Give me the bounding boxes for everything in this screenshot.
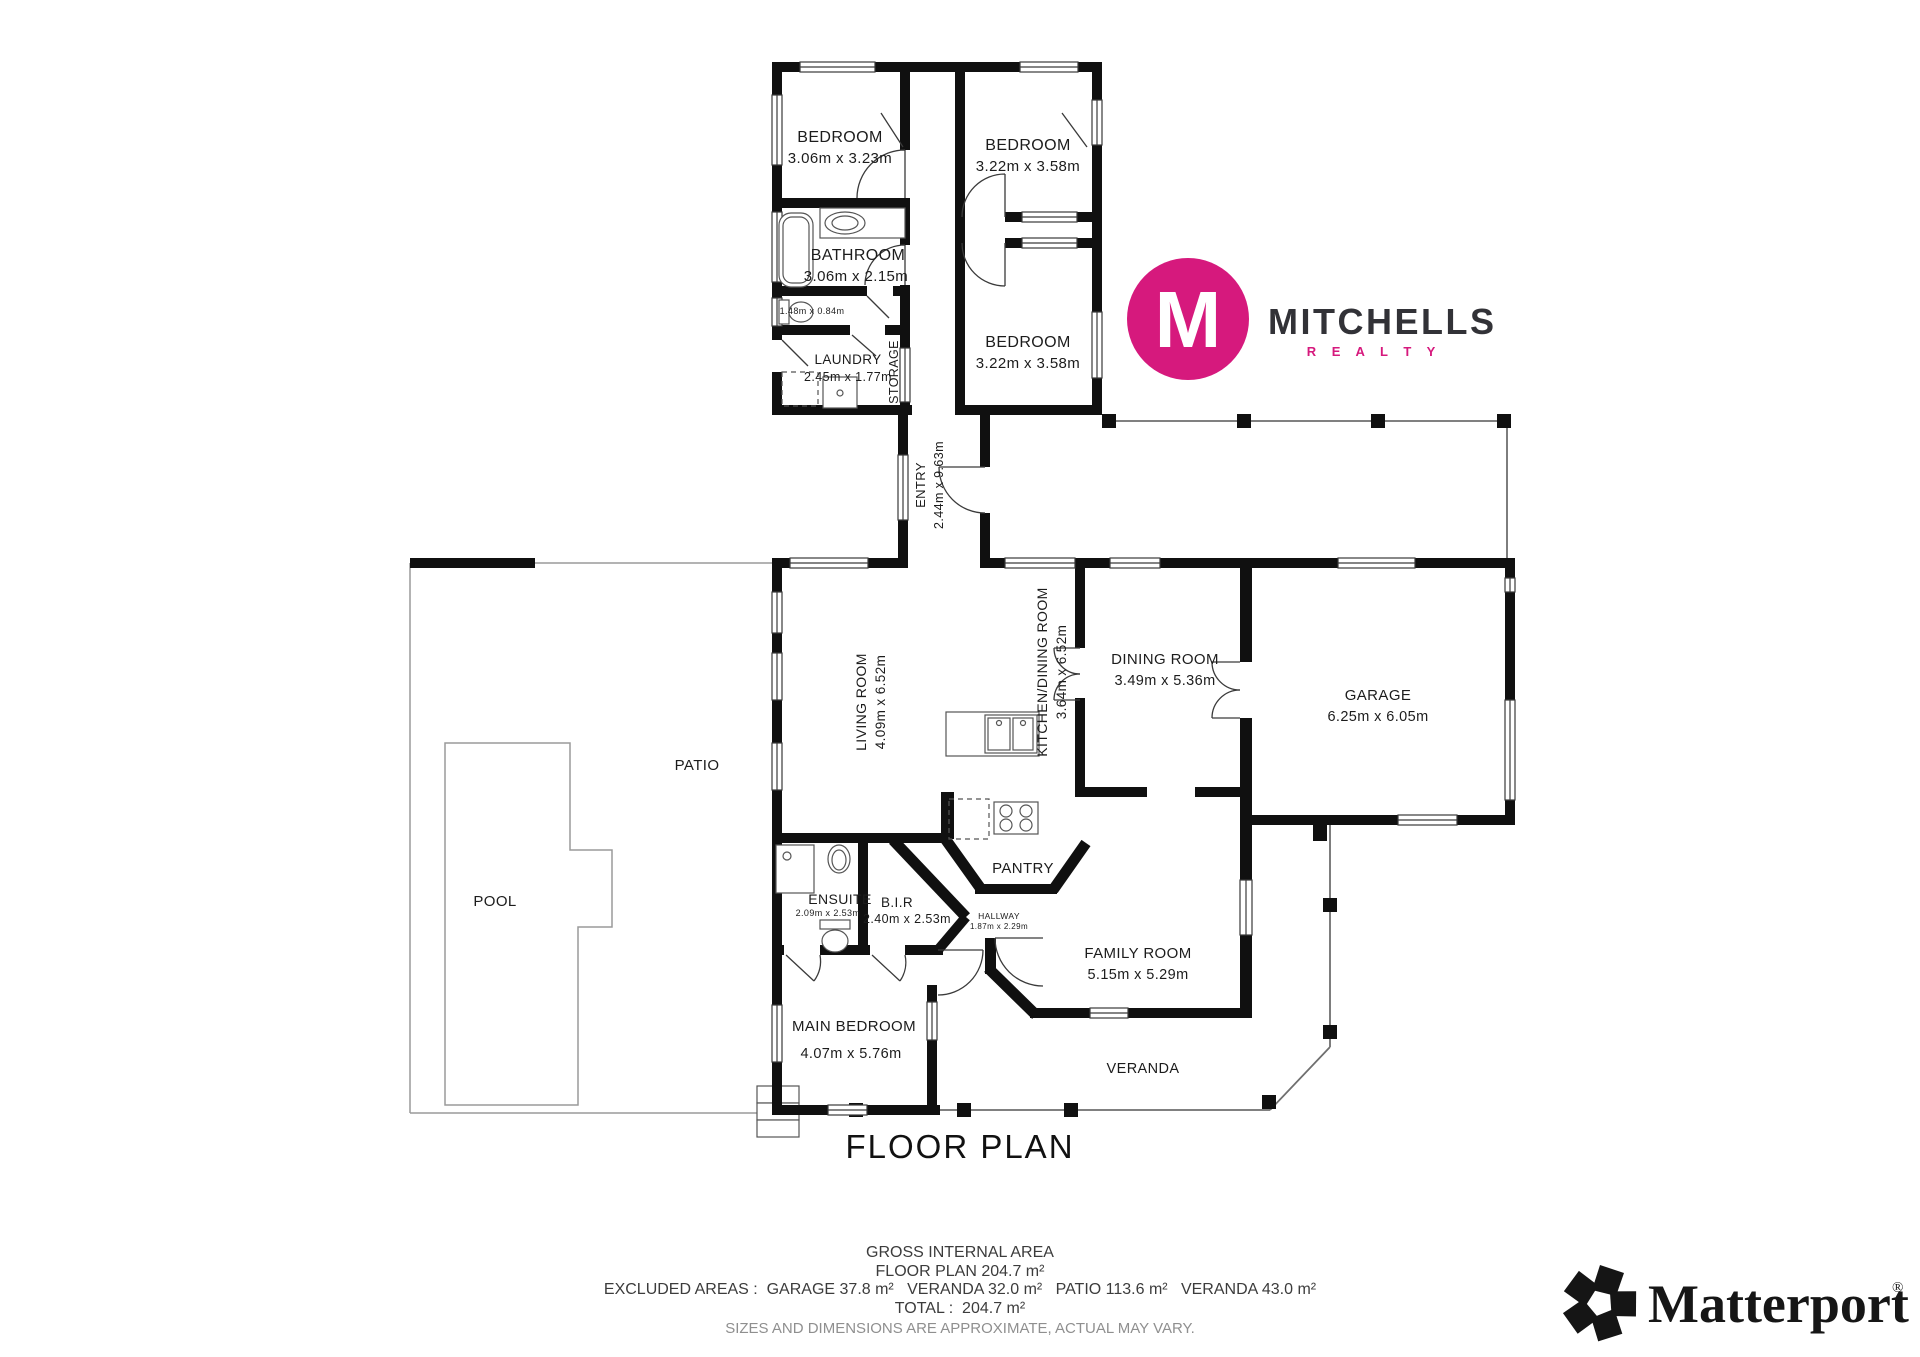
room-name: BEDROOM [985,137,1070,154]
room-name: MAIN BEDROOM [792,1018,916,1035]
room-name: POOL [473,893,516,910]
room-name: PATIO [675,757,720,774]
room-dims: 4.09m x 6.52m [873,655,888,750]
area-summary: GROSS INTERNAL AREA FLOOR PLAN 204.7 m² … [0,1244,1920,1339]
room-dims: 5.15m x 5.29m [1087,967,1188,983]
room-name: KITCHEN/DINING ROOM [1034,587,1050,756]
label-laundry: LAUNDRY 2.45m x 1.77m [804,352,892,384]
floor-plan-drawing: BEDROOM 3.06m x 3.23m BEDROOM 3.22m x 3.… [0,0,1920,1357]
room-name: FAMILY ROOM [1084,945,1191,962]
bathroom-sink [820,208,905,238]
label-pool: POOL [473,893,516,910]
room-dims: 6.25m x 6.05m [1327,709,1428,725]
room-name: GARAGE [1345,687,1412,704]
label-bedroom-2: BEDROOM 3.22m x 3.58m [976,137,1080,175]
label-ensuite: ENSUITE 2.09m x 2.53m [796,891,872,918]
room-name: VERANDA [1107,1061,1180,1077]
label-bedroom-1: BEDROOM 3.06m x 3.23m [788,129,892,167]
label-entry: ENTRY 2.44m x 9.63m [913,441,946,529]
label-family-room: FAMILY ROOM 5.15m x 5.29m [1084,945,1191,983]
summary-heading: GROSS INTERNAL AREA [0,1244,1920,1263]
ensuite-toilet [820,920,850,952]
label-living-room: LIVING ROOM 4.09m x 6.52m [853,653,888,751]
room-dims: 3.22m x 3.58m [976,355,1080,372]
floor-plan-page: BEDROOM 3.06m x 3.23m BEDROOM 3.22m x 3.… [0,0,1920,1357]
room-dims: 2.09m x 2.53m [796,908,861,918]
room-name: ENSUITE [808,891,871,907]
label-hallway: HALLWAY 1.87m x 2.29m [970,911,1028,931]
summary-excluded-areas: EXCLUDED AREAS : GARAGE 37.8 m² VERANDA … [0,1281,1920,1300]
kitchen-island [946,712,1039,756]
mitchells-monogram: M [1155,275,1222,364]
summary-total-area: TOTAL : 204.7 m² [0,1300,1920,1319]
room-name: HALLWAY [978,911,1020,921]
page-title: FLOOR PLAN [845,1128,1074,1165]
room-dims: 2.44m x 9.63m [932,441,946,529]
label-kitchen-dining: KITCHEN/DINING ROOM 3.64m x 6.52m [1034,587,1069,756]
ensuite-sink [828,845,850,873]
summary-floor-plan-area: FLOOR PLAN 204.7 m² [0,1263,1920,1282]
room-name: B.I.R [881,895,913,910]
room-name: LIVING ROOM [853,653,869,751]
room-dims: 4.07m x 5.76m [800,1046,901,1062]
label-dining-room: DINING ROOM 3.49m x 5.36m [1111,651,1219,689]
label-patio: PATIO [675,757,720,774]
room-name: BATHROOM [811,247,905,264]
mitchells-logo: M MITCHELLS R E A L T Y [1127,258,1496,380]
room-name: STORAGE [887,340,901,404]
room-dims: 1.87m x 2.29m [970,922,1028,931]
patio-outline [410,558,772,1113]
label-bathroom: BATHROOM 3.06m x 2.15m [804,247,908,285]
pool-outline [445,743,612,1105]
ensuite-shower [776,845,814,893]
label-veranda: VERANDA [1107,1061,1180,1077]
room-dims: 3.06m x 3.23m [788,150,892,167]
room-dims: 2.40m x 2.53m [863,912,951,926]
label-bir: B.I.R 2.40m x 2.53m [863,895,951,926]
room-name: DINING ROOM [1111,651,1219,668]
room-name: ENTRY [913,462,928,508]
room-name: LAUNDRY [814,352,881,367]
room-name: PANTRY [992,860,1054,877]
label-storage: STORAGE [887,340,901,404]
veranda-top-outline [1102,414,1511,558]
room-name: BEDROOM [797,129,882,146]
room-name: BEDROOM [985,334,1070,351]
fridge-space [949,799,989,839]
room-dims: 3.06m x 2.15m [804,268,908,285]
room-dims: 3.64m x 6.52m [1054,625,1069,720]
stove [994,802,1038,834]
room-dims: 2.45m x 1.77m [804,370,892,384]
summary-disclaimer: SIZES AND DIMENSIONS ARE APPROXIMATE, AC… [0,1320,1920,1339]
label-pantry: PANTRY [992,860,1054,877]
label-wc: 1.48m x 0.84m [780,306,845,316]
label-garage: GARAGE 6.25m x 6.05m [1327,687,1428,725]
room-dims: 3.49m x 5.36m [1114,673,1215,689]
label-bedroom-3: BEDROOM 3.22m x 3.58m [976,334,1080,372]
label-main-bedroom: MAIN BEDROOM 4.07m x 5.76m [792,1018,916,1062]
mitchells-subtext: R E A L T Y [1307,344,1442,359]
room-dims: 3.22m x 3.58m [976,158,1080,175]
room-dims: 1.48m x 0.84m [780,306,845,316]
mitchells-wordmark: MITCHELLS [1268,301,1496,342]
